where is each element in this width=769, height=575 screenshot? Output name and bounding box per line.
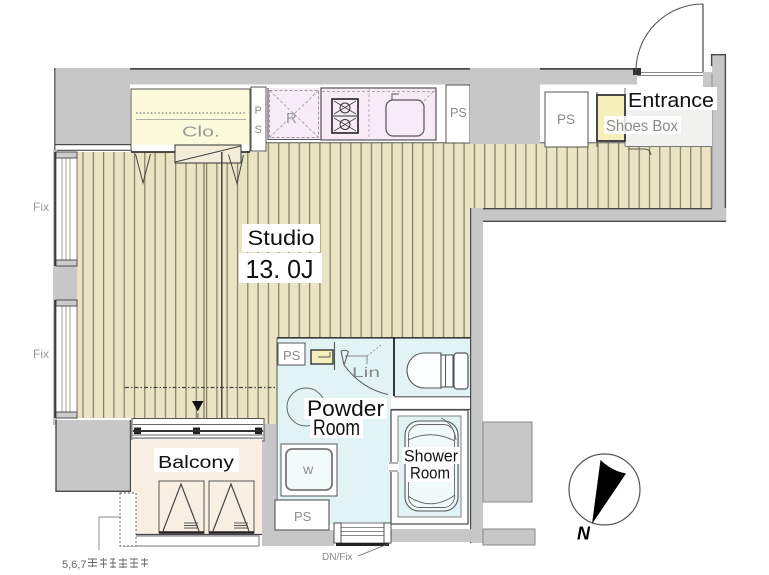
svg-text:PS: PS [557, 112, 575, 127]
svg-text:DN/Fix: DN/Fix [322, 552, 353, 563]
svg-text:Studio: Studio [248, 227, 315, 250]
svg-text:N: N [577, 524, 591, 544]
svg-text:PS: PS [283, 348, 301, 363]
svg-text:13. 0J: 13. 0J [246, 254, 314, 284]
svg-text:Room: Room [410, 464, 450, 483]
svg-text:P: P [255, 105, 262, 117]
svg-text:Clo.: Clo. [182, 124, 220, 141]
svg-text:W: W [303, 465, 314, 477]
svg-text:Shoes Box: Shoes Box [606, 118, 678, 135]
svg-text:Entrance: Entrance [628, 89, 714, 112]
svg-text:5,6,7: 5,6,7 [62, 559, 86, 571]
svg-text:Lin: Lin [352, 364, 380, 380]
svg-text:Fix: Fix [33, 347, 49, 361]
svg-text:Fix: Fix [33, 200, 49, 214]
svg-text:S: S [255, 124, 262, 136]
svg-text:Balcony: Balcony [158, 452, 234, 472]
svg-text:Room: Room [313, 415, 360, 440]
svg-text:PS: PS [450, 106, 467, 120]
svg-text:PS: PS [294, 509, 312, 524]
svg-text:R: R [286, 110, 297, 127]
